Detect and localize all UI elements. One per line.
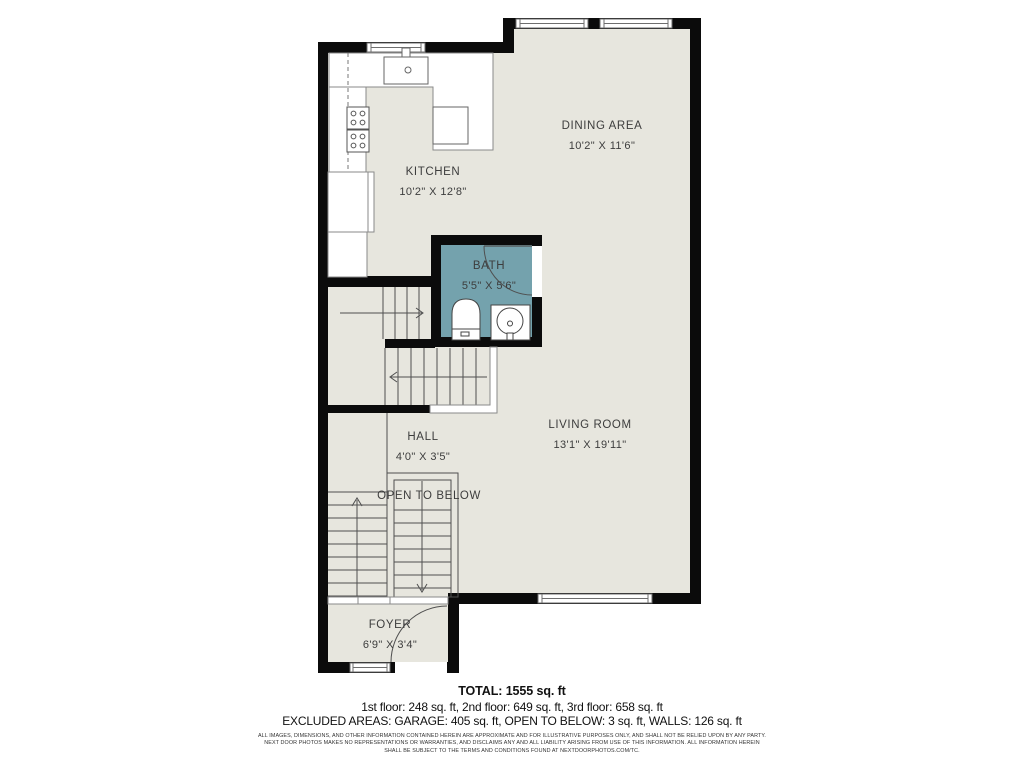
excluded-areas-text: EXCLUDED AREAS: GARAGE: 405 sq. ft, OPEN… <box>0 714 1024 728</box>
toilet-icon <box>452 299 480 340</box>
living-room-window <box>538 594 652 603</box>
room-dims: 10'2" X 12'8" <box>399 187 466 198</box>
kitchen-window <box>367 43 425 52</box>
foyer-landing <box>328 597 448 604</box>
cooktop-icon <box>347 107 369 152</box>
bath-fixtures <box>452 299 530 340</box>
floor-areas-text: 1st floor: 248 sq. ft, 2nd floor: 649 sq… <box>0 700 1024 714</box>
dining-window-left <box>516 19 588 28</box>
dining-window-right <box>600 19 672 28</box>
kitchen-island <box>433 107 468 144</box>
bath-sink-icon <box>491 305 530 340</box>
kitchen-cabinet <box>328 232 367 277</box>
foyer-window <box>350 663 390 672</box>
room-label-hall: HALL 4'0" X 3'5" <box>396 432 450 463</box>
room-name: LIVING ROOM <box>548 419 631 431</box>
refrigerator-icon <box>328 172 374 232</box>
room-label-kitchen: KITCHEN 10'2" X 12'8" <box>399 167 466 198</box>
disclaimer-line-1: ALL IMAGES, DIMENSIONS, AND OTHER INFORM… <box>0 733 1024 740</box>
room-name: BATH <box>473 260 505 272</box>
room-name: FOYER <box>369 619 412 631</box>
open-to-below-label: OPEN TO BELOW <box>377 490 481 502</box>
room-name: HALL <box>407 431 438 443</box>
room-dims: 10'2" X 11'6" <box>562 141 643 152</box>
room-dims: 6'9" X 3'4" <box>363 640 417 651</box>
room-label-foyer: FOYER 6'9" X 3'4" <box>363 620 417 651</box>
floorplan-page: DINING AREA 10'2" X 11'6" KITCHEN 10'2" … <box>0 0 1024 768</box>
room-label-dining: DINING AREA 10'2" X 11'6" <box>562 121 643 152</box>
room-label-bath: BATH 5'5" X 5'6" <box>462 261 516 292</box>
room-dims: 5'5" X 5'6" <box>462 281 516 292</box>
floorplan-drawing <box>0 0 1024 768</box>
disclaimer-text: ALL IMAGES, DIMENSIONS, AND OTHER INFORM… <box>0 733 1024 755</box>
total-area-text: TOTAL: 1555 sq. ft <box>0 684 1024 699</box>
room-name: KITCHEN <box>406 166 461 178</box>
room-name: DINING AREA <box>562 120 643 132</box>
room-label-living: LIVING ROOM 13'1" X 19'11" <box>548 420 631 451</box>
disclaimer-line-2: NEXT DOOR PHOTOS MAKES NO REPRESENTATION… <box>0 740 1024 747</box>
room-dims: 4'0" X 3'5" <box>396 452 450 463</box>
disclaimer-line-3: SHALL BE SUBJECT TO THE TERMS AND CONDIT… <box>0 748 1024 755</box>
plan-summary: TOTAL: 1555 sq. ft 1st floor: 248 sq. ft… <box>0 684 1024 755</box>
room-dims: 13'1" X 19'11" <box>548 440 631 451</box>
